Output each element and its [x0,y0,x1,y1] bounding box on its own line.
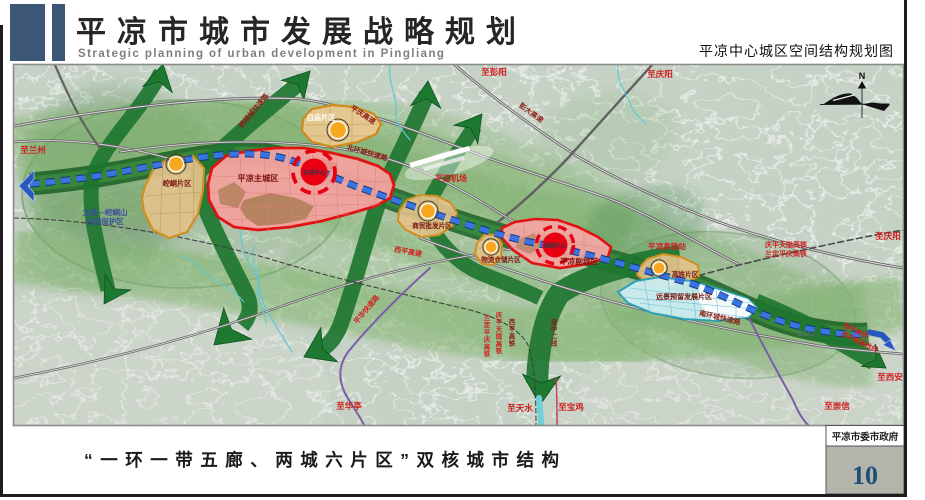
svg-text:平凉市委市政府: 平凉市委市政府 [832,431,899,443]
svg-text:平凉副城区: 平凉副城区 [560,256,598,266]
svg-text:平凉高铁站: 平凉高铁站 [648,241,686,251]
svg-text:副城中心: 副城中心 [544,242,567,250]
svg-text:庆平天陇高铁: 庆平天陇高铁 [495,310,503,355]
svg-text:高铁片区: 高铁片区 [672,270,699,279]
svg-text:“一环一带五廊、两城六片区”双核城市结构: “一环一带五廊、两城六片区”双核城市结构 [84,450,567,470]
svg-text:至崇信: 至崇信 [824,401,850,411]
svg-text:宝中二线: 宝中二线 [551,317,558,348]
svg-text:至宝鸡: 至宝鸡 [558,402,584,412]
svg-text:平凉中心城区空间结构规划图: 平凉中心城区空间结构规划图 [699,43,894,59]
svg-text:至华亭: 至华亭 [336,401,362,411]
svg-text:兰定平庆高铁: 兰定平庆高铁 [483,313,491,358]
svg-text:至彭阳: 至彭阳 [481,67,507,77]
svg-text:兰定平庆高铁: 兰定平庆高铁 [765,249,807,258]
svg-text:商贸批发片区: 商贸批发片区 [412,221,452,230]
svg-text:至天水: 至天水 [507,403,533,413]
svg-text:物流仓储片区: 物流仓储片区 [481,255,521,264]
svg-text:主城中心: 主城中心 [302,169,325,177]
svg-text:西平高铁: 西平高铁 [508,318,516,348]
svg-text:崆峒片区: 崆峒片区 [163,179,192,188]
svg-text:远景预留发展片区: 远景预留发展片区 [656,292,712,301]
svg-text:自然保护区: 自然保护区 [86,216,124,226]
svg-text:平凉市城市发展战略规划: 平凉市城市发展战略规划 [76,15,527,49]
svg-text:至庆阳: 至庆阳 [647,69,673,79]
svg-text:庆平天陇高铁: 庆平天陇高铁 [764,240,807,249]
svg-text:G312: G312 [797,329,816,338]
svg-text:至兰州: 至兰州 [20,145,46,155]
svg-text:至西安: 至西安 [877,372,903,382]
svg-text:Strategic planning of urban de: Strategic planning of urban development … [78,48,445,60]
svg-text:10: 10 [852,461,878,490]
svg-text:平凉主城区: 平凉主城区 [238,173,279,183]
svg-text:白庙片区: 白庙片区 [307,113,336,122]
svg-text:至庆阳: 至庆阳 [875,231,901,241]
svg-text:平凉机场: 平凉机场 [435,173,467,183]
svg-text:太统—崆峒山: 太统—崆峒山 [83,207,128,217]
svg-text:N: N [859,71,866,81]
